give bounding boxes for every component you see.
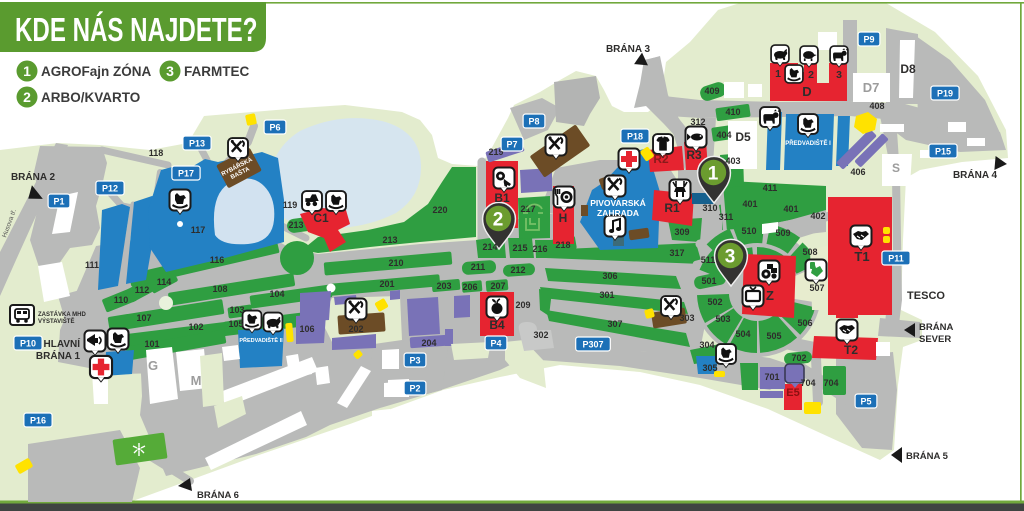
svg-text:312: 312 bbox=[690, 117, 705, 127]
svg-text:409: 409 bbox=[704, 86, 719, 96]
svg-text:P15: P15 bbox=[935, 147, 951, 157]
svg-text:310: 310 bbox=[702, 203, 717, 213]
svg-text:G: G bbox=[148, 358, 158, 373]
svg-text:704: 704 bbox=[800, 378, 815, 388]
svg-text:HLAVNÍ: HLAVNÍ bbox=[44, 337, 81, 350]
svg-text:118: 118 bbox=[149, 148, 164, 158]
svg-text:P4: P4 bbox=[490, 339, 501, 349]
svg-text:B4: B4 bbox=[489, 318, 505, 332]
svg-text:2: 2 bbox=[23, 89, 31, 105]
svg-text:212: 212 bbox=[510, 265, 525, 275]
svg-text:BRÁNA 6: BRÁNA 6 bbox=[197, 490, 239, 501]
svg-text:213: 213 bbox=[382, 235, 397, 245]
svg-text:107: 107 bbox=[136, 313, 151, 323]
svg-text:R1: R1 bbox=[664, 201, 680, 215]
svg-text:106: 106 bbox=[299, 324, 314, 334]
svg-text:BRÁNA 4: BRÁNA 4 bbox=[953, 168, 998, 181]
svg-text:302: 302 bbox=[533, 330, 548, 340]
svg-text:104: 104 bbox=[269, 289, 284, 299]
svg-text:103: 103 bbox=[229, 305, 244, 315]
svg-text:KDE NÁS NAJDETE?: KDE NÁS NAJDETE? bbox=[15, 10, 257, 49]
svg-text:P3: P3 bbox=[409, 356, 420, 366]
svg-text:105: 105 bbox=[228, 319, 243, 329]
svg-text:507: 507 bbox=[809, 283, 824, 293]
svg-text:P6: P6 bbox=[269, 123, 280, 133]
svg-text:3: 3 bbox=[836, 69, 842, 81]
svg-text:Z: Z bbox=[766, 288, 774, 303]
svg-text:P2: P2 bbox=[409, 384, 420, 394]
svg-text:306: 306 bbox=[602, 271, 617, 281]
svg-text:D: D bbox=[802, 84, 811, 99]
svg-text:117: 117 bbox=[191, 225, 206, 235]
svg-text:218: 218 bbox=[555, 240, 570, 250]
svg-text:401: 401 bbox=[742, 199, 757, 209]
svg-text:2: 2 bbox=[808, 69, 814, 81]
svg-text:406: 406 bbox=[850, 167, 865, 177]
svg-text:T2: T2 bbox=[844, 343, 858, 357]
svg-text:3: 3 bbox=[166, 63, 174, 79]
svg-text:510: 510 bbox=[741, 226, 756, 236]
svg-text:309: 309 bbox=[674, 227, 689, 237]
svg-text:311: 311 bbox=[719, 212, 734, 222]
svg-text:FARMTEC: FARMTEC bbox=[184, 64, 249, 79]
svg-text:210: 210 bbox=[388, 258, 403, 268]
svg-text:PIVOVARSKÁ: PIVOVARSKÁ bbox=[590, 198, 646, 208]
svg-text:BRÁNA: BRÁNA bbox=[919, 322, 953, 333]
svg-text:ZASTÁVKA MHD: ZASTÁVKA MHD bbox=[38, 311, 86, 318]
svg-text:PŘEDVADIŠTĚ I: PŘEDVADIŠTĚ I bbox=[785, 139, 831, 147]
svg-text:BRÁNA 2: BRÁNA 2 bbox=[11, 170, 56, 183]
svg-text:304: 304 bbox=[699, 340, 714, 350]
svg-text:307: 307 bbox=[607, 319, 622, 329]
svg-text:702: 702 bbox=[791, 353, 806, 363]
svg-text:3: 3 bbox=[725, 247, 736, 268]
svg-text:303: 303 bbox=[679, 313, 694, 323]
svg-text:112: 112 bbox=[135, 285, 150, 295]
svg-text:506: 506 bbox=[797, 318, 812, 328]
svg-text:P5: P5 bbox=[860, 397, 871, 407]
svg-text:D5: D5 bbox=[735, 130, 751, 144]
svg-text:P13: P13 bbox=[189, 139, 205, 149]
svg-text:215: 215 bbox=[512, 243, 527, 253]
svg-text:P17: P17 bbox=[178, 169, 194, 179]
svg-text:206: 206 bbox=[462, 282, 477, 292]
svg-text:P1: P1 bbox=[53, 197, 64, 207]
svg-text:BRÁNA 3: BRÁNA 3 bbox=[606, 42, 651, 55]
svg-text:R3: R3 bbox=[686, 148, 702, 162]
svg-text:211: 211 bbox=[471, 262, 486, 272]
svg-text:1: 1 bbox=[775, 68, 781, 80]
svg-text:403: 403 bbox=[725, 156, 740, 166]
svg-text:102: 102 bbox=[188, 322, 203, 332]
svg-text:P307: P307 bbox=[582, 340, 603, 350]
svg-text:209: 209 bbox=[515, 300, 530, 310]
svg-text:D7: D7 bbox=[863, 80, 880, 95]
svg-text:TESCO: TESCO bbox=[907, 290, 945, 302]
svg-text:AGROFajn ZÓNA: AGROFajn ZÓNA bbox=[41, 64, 151, 79]
svg-text:SEVER: SEVER bbox=[919, 334, 951, 345]
svg-text:502: 502 bbox=[707, 297, 722, 307]
svg-text:BRÁNA 5: BRÁNA 5 bbox=[906, 451, 949, 462]
svg-text:404: 404 bbox=[716, 130, 731, 140]
svg-text:M: M bbox=[191, 373, 202, 388]
svg-text:504: 504 bbox=[735, 329, 750, 339]
svg-text:402: 402 bbox=[810, 211, 825, 221]
svg-text:BRÁNA 1: BRÁNA 1 bbox=[36, 349, 81, 362]
svg-text:P19: P19 bbox=[937, 89, 953, 99]
svg-text:509: 509 bbox=[775, 228, 790, 238]
svg-text:ZAHRADA: ZAHRADA bbox=[597, 208, 639, 218]
svg-text:P8: P8 bbox=[528, 117, 539, 127]
svg-text:410: 410 bbox=[725, 107, 740, 117]
svg-text:301: 301 bbox=[599, 290, 614, 300]
svg-text:C1: C1 bbox=[313, 211, 329, 225]
svg-text:111: 111 bbox=[85, 260, 99, 270]
svg-text:PŘEDVADIŠTĚ II: PŘEDVADIŠTĚ II bbox=[239, 336, 283, 344]
svg-text:108: 108 bbox=[212, 284, 227, 294]
svg-text:P11: P11 bbox=[888, 254, 904, 264]
svg-text:202: 202 bbox=[348, 324, 363, 334]
svg-text:701: 701 bbox=[764, 372, 779, 382]
svg-text:P12: P12 bbox=[102, 184, 118, 194]
svg-text:VÝSTAVIŠTĚ: VÝSTAVIŠTĚ bbox=[38, 317, 74, 325]
svg-text:213: 213 bbox=[288, 220, 303, 230]
svg-text:411: 411 bbox=[763, 183, 778, 193]
svg-text:503: 503 bbox=[715, 314, 730, 324]
svg-text:214: 214 bbox=[482, 242, 497, 252]
svg-text:408: 408 bbox=[869, 101, 884, 111]
svg-text:P16: P16 bbox=[30, 416, 46, 426]
svg-text:317: 317 bbox=[669, 248, 684, 258]
svg-text:220: 220 bbox=[432, 205, 447, 215]
svg-text:505: 505 bbox=[766, 331, 781, 341]
svg-text:101: 101 bbox=[144, 339, 159, 349]
svg-text:T1: T1 bbox=[854, 249, 869, 264]
svg-text:R2: R2 bbox=[653, 152, 669, 166]
svg-text:204: 204 bbox=[421, 338, 436, 348]
svg-text:116: 116 bbox=[210, 255, 225, 265]
svg-text:401: 401 bbox=[783, 204, 798, 214]
svg-text:305: 305 bbox=[702, 363, 717, 373]
svg-text:B1: B1 bbox=[494, 191, 510, 205]
svg-text:216: 216 bbox=[532, 244, 547, 254]
svg-text:119: 119 bbox=[283, 200, 298, 210]
svg-text:E5: E5 bbox=[786, 387, 799, 399]
svg-text:P7: P7 bbox=[506, 140, 517, 150]
svg-text:110: 110 bbox=[114, 295, 129, 305]
svg-text:P18: P18 bbox=[627, 132, 643, 142]
svg-text:1: 1 bbox=[708, 164, 719, 185]
svg-text:H: H bbox=[559, 211, 568, 225]
svg-text:704: 704 bbox=[823, 378, 838, 388]
svg-text:D8: D8 bbox=[900, 62, 916, 76]
svg-text:207: 207 bbox=[490, 281, 505, 291]
svg-text:508: 508 bbox=[802, 247, 817, 257]
svg-text:P10: P10 bbox=[20, 339, 36, 349]
svg-text:501: 501 bbox=[701, 276, 716, 286]
svg-text:ARBO/KVARTO: ARBO/KVARTO bbox=[41, 90, 140, 105]
svg-text:203: 203 bbox=[436, 281, 451, 291]
svg-text:1: 1 bbox=[23, 63, 31, 79]
svg-text:S: S bbox=[892, 161, 900, 175]
svg-text:114: 114 bbox=[157, 277, 172, 287]
svg-text:P9: P9 bbox=[863, 35, 874, 45]
svg-text:201: 201 bbox=[379, 279, 394, 289]
svg-text:511: 511 bbox=[701, 255, 716, 265]
svg-text:2: 2 bbox=[493, 210, 504, 231]
